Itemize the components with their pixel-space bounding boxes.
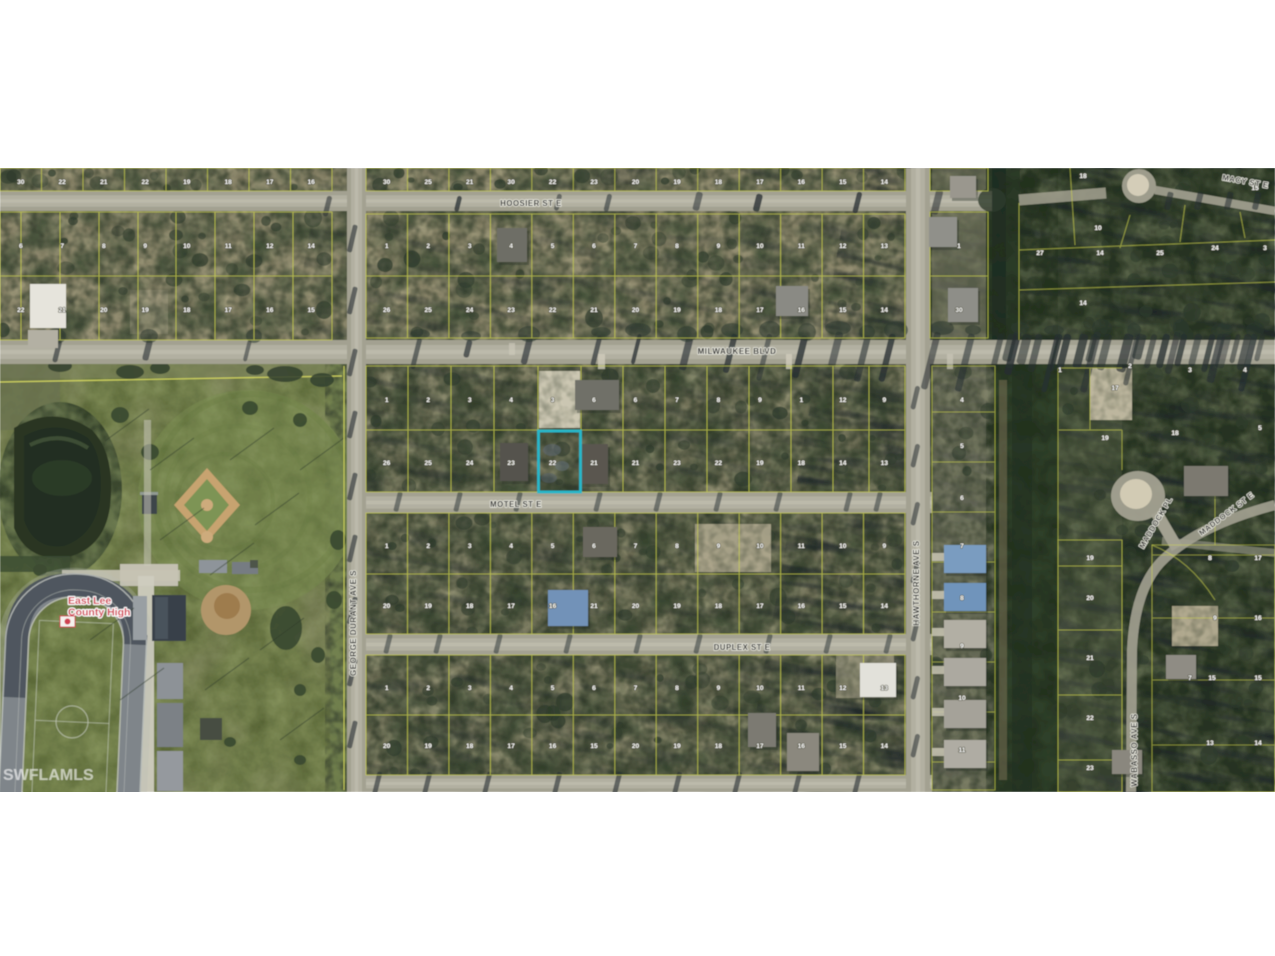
svg-text:17: 17 xyxy=(507,603,515,610)
svg-text:2: 2 xyxy=(1128,363,1132,370)
svg-text:20: 20 xyxy=(632,179,640,186)
svg-text:15: 15 xyxy=(839,179,847,186)
svg-text:30: 30 xyxy=(507,179,515,186)
svg-text:7: 7 xyxy=(634,543,638,550)
svg-text:18: 18 xyxy=(715,603,723,610)
svg-text:22: 22 xyxy=(59,179,67,186)
svg-text:8: 8 xyxy=(675,243,679,250)
svg-text:19: 19 xyxy=(1101,435,1109,442)
svg-text:18: 18 xyxy=(798,460,806,467)
svg-text:10: 10 xyxy=(958,695,966,702)
svg-text:23: 23 xyxy=(1086,765,1094,772)
svg-text:20: 20 xyxy=(383,743,391,750)
svg-text:13: 13 xyxy=(881,685,889,692)
svg-text:12: 12 xyxy=(839,685,847,692)
svg-text:HOOSIER ST E: HOOSIER ST E xyxy=(500,199,561,208)
svg-text:6: 6 xyxy=(592,397,596,404)
svg-text:SWFLAMLS: SWFLAMLS xyxy=(3,767,94,784)
svg-text:County High: County High xyxy=(68,607,130,619)
svg-text:5: 5 xyxy=(551,543,555,550)
svg-text:20: 20 xyxy=(1086,595,1094,602)
svg-text:26: 26 xyxy=(383,460,391,467)
svg-text:26: 26 xyxy=(383,307,391,314)
svg-text:14: 14 xyxy=(1096,250,1104,257)
svg-text:11: 11 xyxy=(798,543,805,550)
svg-text:16: 16 xyxy=(798,603,806,610)
svg-text:15: 15 xyxy=(1254,675,1262,682)
svg-text:21: 21 xyxy=(1086,655,1094,662)
svg-text:25: 25 xyxy=(425,460,433,467)
svg-text:3: 3 xyxy=(468,397,472,404)
svg-text:14: 14 xyxy=(881,307,889,314)
svg-text:16: 16 xyxy=(798,179,806,186)
svg-text:12: 12 xyxy=(839,397,847,404)
svg-text:19: 19 xyxy=(425,603,433,610)
svg-text:19: 19 xyxy=(756,460,764,467)
svg-text:3: 3 xyxy=(468,243,472,250)
svg-text:9: 9 xyxy=(1213,615,1217,622)
svg-text:21: 21 xyxy=(100,179,108,186)
svg-text:9: 9 xyxy=(758,397,762,404)
svg-text:9: 9 xyxy=(960,643,964,650)
svg-text:9: 9 xyxy=(717,243,721,250)
svg-text:27: 27 xyxy=(1036,250,1044,257)
svg-text:17: 17 xyxy=(1254,555,1262,562)
svg-text:7: 7 xyxy=(634,243,638,250)
svg-text:5: 5 xyxy=(960,443,964,450)
svg-text:15: 15 xyxy=(1208,675,1216,682)
svg-text:7: 7 xyxy=(1188,675,1192,682)
svg-text:17: 17 xyxy=(756,307,764,314)
svg-text:17: 17 xyxy=(756,743,764,750)
svg-text:9: 9 xyxy=(882,543,886,550)
svg-text:24: 24 xyxy=(1211,245,1219,252)
svg-text:16: 16 xyxy=(1254,615,1262,622)
svg-text:18: 18 xyxy=(466,603,474,610)
svg-text:18: 18 xyxy=(715,307,723,314)
svg-text:4: 4 xyxy=(509,243,513,250)
svg-text:East Lee: East Lee xyxy=(68,595,111,607)
svg-text:22: 22 xyxy=(549,179,557,186)
svg-text:23: 23 xyxy=(507,460,515,467)
svg-text:5: 5 xyxy=(551,685,555,692)
svg-text:21: 21 xyxy=(466,179,474,186)
svg-text:11: 11 xyxy=(225,243,232,250)
svg-text:22: 22 xyxy=(17,307,25,314)
svg-text:30: 30 xyxy=(17,179,25,186)
svg-text:3: 3 xyxy=(551,397,555,404)
svg-text:9: 9 xyxy=(717,685,721,692)
svg-text:6: 6 xyxy=(19,243,23,250)
svg-text:17: 17 xyxy=(756,603,764,610)
svg-text:4: 4 xyxy=(509,543,513,550)
svg-text:2: 2 xyxy=(426,543,430,550)
svg-text:5: 5 xyxy=(551,243,555,250)
svg-text:14: 14 xyxy=(1079,300,1087,307)
svg-text:16: 16 xyxy=(549,603,557,610)
svg-text:7: 7 xyxy=(634,685,638,692)
svg-text:24: 24 xyxy=(466,460,474,467)
svg-text:19: 19 xyxy=(183,179,191,186)
svg-text:4: 4 xyxy=(509,397,513,404)
svg-text:16: 16 xyxy=(549,743,557,750)
svg-text:19: 19 xyxy=(425,743,433,750)
svg-text:7: 7 xyxy=(675,397,679,404)
svg-text:6: 6 xyxy=(592,543,596,550)
svg-text:22: 22 xyxy=(1086,715,1094,722)
svg-text:10: 10 xyxy=(756,543,764,550)
svg-text:9: 9 xyxy=(143,243,147,250)
svg-text:7: 7 xyxy=(60,243,64,250)
svg-text:12: 12 xyxy=(839,243,847,250)
svg-text:14: 14 xyxy=(839,460,847,467)
svg-text:8: 8 xyxy=(675,543,679,550)
svg-text:16: 16 xyxy=(798,307,806,314)
svg-text:19: 19 xyxy=(1086,555,1094,562)
svg-text:1: 1 xyxy=(799,397,803,404)
svg-text:21: 21 xyxy=(590,460,598,467)
svg-text:19: 19 xyxy=(673,307,681,314)
svg-text:14: 14 xyxy=(1254,740,1262,747)
svg-text:HAWTHORNE AVE S: HAWTHORNE AVE S xyxy=(912,540,921,625)
svg-text:25: 25 xyxy=(425,307,433,314)
svg-text:21: 21 xyxy=(590,603,598,610)
svg-text:14: 14 xyxy=(881,743,889,750)
svg-text:8: 8 xyxy=(960,595,964,602)
svg-text:21: 21 xyxy=(590,307,598,314)
svg-text:20: 20 xyxy=(632,603,640,610)
svg-text:8: 8 xyxy=(675,685,679,692)
svg-text:8: 8 xyxy=(102,243,106,250)
svg-text:2: 2 xyxy=(426,685,430,692)
svg-text:17: 17 xyxy=(225,307,233,314)
svg-text:25: 25 xyxy=(1156,250,1164,257)
svg-text:1: 1 xyxy=(1058,367,1062,374)
svg-text:20: 20 xyxy=(100,307,108,314)
svg-text:13: 13 xyxy=(881,243,889,250)
svg-text:17: 17 xyxy=(756,179,764,186)
svg-text:16: 16 xyxy=(308,179,316,186)
svg-text:1: 1 xyxy=(385,397,389,404)
svg-text:14: 14 xyxy=(308,243,316,250)
svg-text:10: 10 xyxy=(839,543,847,550)
svg-text:2: 2 xyxy=(426,243,430,250)
svg-text:2: 2 xyxy=(426,397,430,404)
svg-text:17: 17 xyxy=(507,743,515,750)
svg-text:1: 1 xyxy=(385,543,389,550)
svg-text:22: 22 xyxy=(142,179,150,186)
svg-text:1: 1 xyxy=(385,685,389,692)
svg-text:5: 5 xyxy=(1258,425,1262,432)
svg-text:18: 18 xyxy=(1171,430,1179,437)
svg-text:16: 16 xyxy=(798,743,806,750)
svg-text:30: 30 xyxy=(955,307,963,314)
svg-text:8: 8 xyxy=(717,397,721,404)
svg-text:4: 4 xyxy=(509,685,513,692)
svg-text:17: 17 xyxy=(1111,385,1119,392)
svg-text:21: 21 xyxy=(59,307,67,314)
svg-text:6: 6 xyxy=(592,685,596,692)
svg-text:3: 3 xyxy=(468,685,472,692)
svg-text:19: 19 xyxy=(142,307,150,314)
svg-text:18: 18 xyxy=(225,179,233,186)
svg-text:15: 15 xyxy=(839,743,847,750)
svg-text:4: 4 xyxy=(960,397,964,404)
svg-text:24: 24 xyxy=(466,307,474,314)
svg-text:13: 13 xyxy=(1206,740,1214,747)
svg-text:11: 11 xyxy=(798,243,805,250)
svg-text:6: 6 xyxy=(634,397,638,404)
svg-text:1: 1 xyxy=(957,243,961,250)
svg-text:20: 20 xyxy=(632,307,640,314)
svg-text:3: 3 xyxy=(1263,245,1267,252)
svg-text:15: 15 xyxy=(308,307,316,314)
svg-text:23: 23 xyxy=(507,307,515,314)
svg-text:10: 10 xyxy=(756,685,764,692)
svg-text:15: 15 xyxy=(839,603,847,610)
svg-text:23: 23 xyxy=(590,179,598,186)
svg-text:8: 8 xyxy=(1208,555,1212,562)
svg-text:13: 13 xyxy=(881,460,889,467)
svg-text:15: 15 xyxy=(590,743,598,750)
svg-text:10: 10 xyxy=(756,243,764,250)
svg-text:12: 12 xyxy=(266,243,274,250)
svg-text:17: 17 xyxy=(266,179,274,186)
svg-text:10: 10 xyxy=(1094,225,1102,232)
svg-text:25: 25 xyxy=(425,179,433,186)
svg-text:18: 18 xyxy=(715,179,723,186)
svg-text:11: 11 xyxy=(959,747,966,754)
svg-text:3: 3 xyxy=(1188,367,1192,374)
svg-text:16: 16 xyxy=(266,307,274,314)
svg-text:14: 14 xyxy=(881,603,889,610)
svg-text:9: 9 xyxy=(882,397,886,404)
svg-text:19: 19 xyxy=(673,179,681,186)
svg-text:11: 11 xyxy=(798,685,805,692)
svg-text:18: 18 xyxy=(1079,173,1087,180)
svg-text:19: 19 xyxy=(673,743,681,750)
svg-text:20: 20 xyxy=(383,603,391,610)
svg-text:10: 10 xyxy=(183,243,191,250)
svg-text:15: 15 xyxy=(839,307,847,314)
svg-text:18: 18 xyxy=(183,307,191,314)
svg-text:14: 14 xyxy=(881,179,889,186)
svg-text:7: 7 xyxy=(960,543,964,550)
svg-text:6: 6 xyxy=(592,243,596,250)
svg-text:6: 6 xyxy=(960,495,964,502)
svg-text:30: 30 xyxy=(383,179,391,186)
svg-text:DUPLEX ST E: DUPLEX ST E xyxy=(714,643,771,652)
svg-text:MILWAUKEE BLVD: MILWAUKEE BLVD xyxy=(698,347,777,356)
svg-text:23: 23 xyxy=(673,460,681,467)
svg-text:GEORGE DURANT AVE S: GEORGE DURANT AVE S xyxy=(349,570,358,676)
svg-text:18: 18 xyxy=(715,743,723,750)
svg-text:9: 9 xyxy=(717,543,721,550)
svg-text:WABASSO AVE S: WABASSO AVE S xyxy=(1130,713,1139,786)
svg-text:18: 18 xyxy=(466,743,474,750)
svg-text:21: 21 xyxy=(632,460,640,467)
svg-text:4: 4 xyxy=(1243,367,1247,374)
svg-text:3: 3 xyxy=(468,543,472,550)
svg-text:22: 22 xyxy=(549,307,557,314)
svg-text:22: 22 xyxy=(715,460,723,467)
svg-text:MOTEL ST E: MOTEL ST E xyxy=(490,500,542,509)
svg-text:1: 1 xyxy=(385,243,389,250)
svg-text:19: 19 xyxy=(673,603,681,610)
svg-text:20: 20 xyxy=(632,743,640,750)
